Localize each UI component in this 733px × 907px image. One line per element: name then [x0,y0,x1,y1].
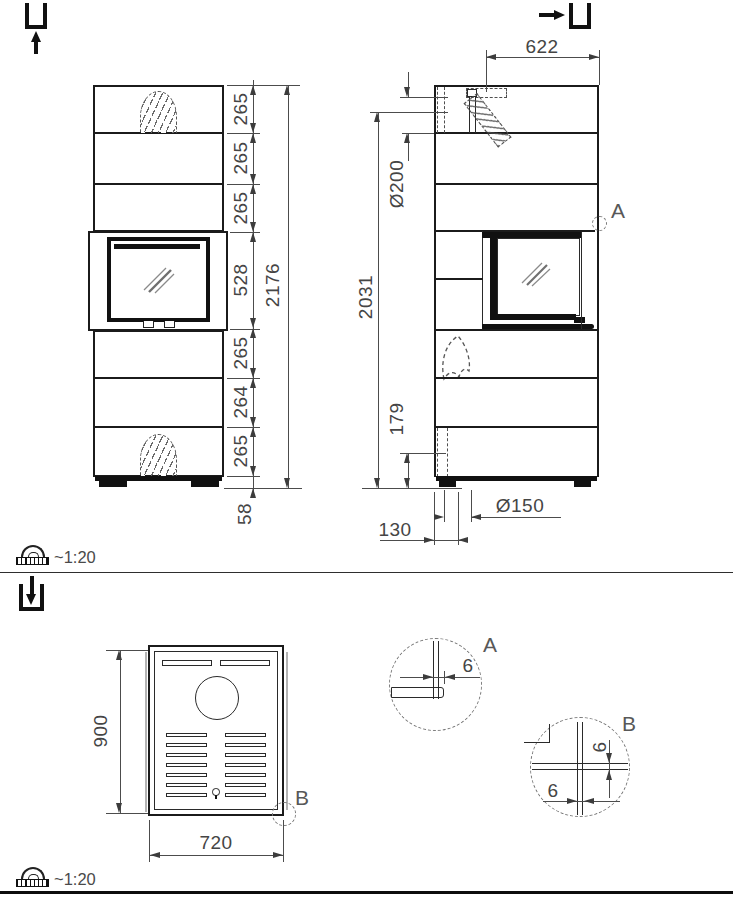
dim-arrow [589,54,599,60]
ext-line [106,813,148,814]
section-divider [0,572,733,574]
dim-label-detail-b-hgap: 6 [547,780,558,802]
dim-arrow [434,514,444,520]
side-flue-riser-hidden [444,87,445,133]
dim-arrow [284,85,290,95]
dim-arrow [584,798,594,804]
vent-slat [225,763,266,767]
top-plate-slot [220,660,270,666]
ext-line [370,112,448,113]
detail-b-corner-piece [524,742,550,744]
vent-slat [166,783,207,787]
vent-slat [225,793,266,797]
dim-arrow [445,674,455,680]
dim-arrow [606,753,612,763]
side-recess-bottom-line [434,329,600,331]
side-door-glass-reflection [515,256,555,288]
dim-arrow [250,488,256,498]
front-door-top-vent-bar [114,244,200,249]
dim-label-front-course-7: 265 [230,434,252,467]
side-door-front-frame [490,238,497,318]
dim-arrow [250,318,256,328]
scale-ruler-icon [16,557,49,566]
dim-total-height-line [288,85,289,488]
ext-line [444,490,445,522]
view-direction-up-arrow-icon [31,31,41,42]
dim-arrow [374,478,380,488]
detail-b-reference-label: B [295,786,309,810]
front-lower-course-line [94,426,223,428]
side-convection-duct-hidden [436,333,478,381]
front-lower-course-line [94,377,223,379]
detail-a-reference-circle [592,216,607,231]
detail-b-label: B [622,712,636,736]
top-flue-opening [195,676,239,720]
side-course-line [434,183,600,185]
dim-label-front-total: 2176 [262,263,284,307]
vent-slat [166,773,207,777]
dim-arrow [404,87,410,97]
scale-note-top: ~1:20 [54,548,96,567]
side-foot-front [439,481,456,488]
dim-width-line [150,855,283,856]
dim-label-outlet-diameter: Ø150 [496,495,544,517]
dim-arrow [284,478,290,488]
dim-label-depth: 900 [90,714,112,747]
ext-line [224,488,302,489]
side-outline-right [597,85,599,477]
dim-label-front-plinth: 58 [234,503,256,525]
vent-slat [166,793,207,797]
side-flue-riser-hidden [437,87,438,133]
vent-slat [166,763,207,767]
front-upper-course-line [94,183,223,185]
dim-arrow [404,478,410,488]
detail-a-glass-edge [433,641,434,699]
side-view-projection-icon [569,3,591,29]
side-recess-front-edge [482,231,484,330]
side-front-column-joint [434,278,483,280]
dim-label-front-course-1: 265 [230,92,252,125]
side-foot-rear [574,481,591,488]
dim-depth-line [120,650,121,813]
vent-slat [225,783,266,787]
technical-drawing-sheet: 265 265 265 528 265 264 265 58 2176 [0,0,733,907]
side-rear-outlet-hidden [447,428,448,477]
detail-a-dim-line [400,677,480,678]
side-outline-left [434,85,436,477]
view-direction-down-arrow-shaft [30,576,34,595]
side-plinth-strip [436,476,597,481]
top-plate-keyhole-slot [215,795,217,800]
dim-arrow [116,650,122,660]
dim-side-height-line [378,112,379,488]
view-direction-right-arrow-shaft [539,13,554,17]
vent-slat [166,743,207,747]
side-course-line [434,132,600,134]
dim-arrow [567,798,577,804]
side-door-bottom-bar [490,314,576,320]
detail-a-circle [389,638,482,731]
vent-slat [225,773,266,777]
vent-slat [166,753,207,757]
front-door-handle [164,321,175,328]
detail-b-corner-piece [549,724,551,744]
scale-note-bottom: ~1:20 [54,870,96,889]
dim-arrow [404,453,410,463]
dim-label-front-course-3: 265 [230,191,252,224]
dim-arrow [606,770,612,780]
front-door-glass-reflection [136,260,180,296]
dim-label-top-width: 622 [525,36,558,58]
dim-arrow [150,852,160,858]
view-direction-right-arrow-icon [554,10,565,20]
vent-slat [166,733,207,737]
front-view-projection-icon [25,3,47,29]
side-outline-top [434,85,600,87]
dim-label-outlet-height: 179 [386,402,408,435]
side-course-line [434,377,600,379]
dim-label-detail-a-gap: 6 [462,655,473,677]
vent-slat [225,733,266,737]
detail-b-reference-circle [272,802,296,826]
dim-arrow [250,174,256,184]
side-angled-flue-option-hidden [464,93,512,148]
dim-label-side-height: 2031 [355,275,377,319]
dim-label-outlet-offset: 130 [378,519,411,541]
view-direction-up-arrow-shaft [34,42,38,54]
dim-arrow [424,537,434,543]
dim-label-front-course-5: 265 [230,336,252,369]
top-view-side-glass-edge-right [286,652,288,810]
dim-arrow [250,232,256,242]
sheet-bottom-border [0,891,733,895]
detail-b-horizontal-joint [532,763,628,764]
ext-line [106,650,148,651]
dim-label-front-course-6: 264 [230,385,252,418]
dim-arrow [471,514,481,520]
scale-ruler-icon [16,879,49,888]
detail-a-reference-label: A [611,199,625,223]
dim-arrow [116,803,122,813]
side-door-latch [574,317,585,323]
dim-arrow [374,112,380,122]
dim-arrow [458,537,468,543]
front-door-handle [143,321,154,328]
vent-slat [225,753,266,757]
dim-label-front-firebox: 528 [230,263,252,296]
dim-arrow [486,54,496,60]
detail-a-glass-edge [438,641,439,699]
detail-a-shelf-section [391,687,444,698]
dim-label-width: 720 [199,832,232,854]
detail-b-horizontal-joint [532,769,628,770]
top-view-side-glass-edge-left [145,652,147,812]
vent-slat [225,743,266,747]
side-recess-back-edge [581,232,582,330]
dim-label-flue-diameter: Ø200 [386,160,408,208]
dim-label-detail-b-vgap: 6 [589,741,611,752]
front-foot-right [191,481,219,488]
top-plate-slot [162,660,212,666]
dim-label-front-course-2: 265 [230,141,252,174]
dim-arrow [404,133,410,143]
side-course-line [434,426,600,428]
front-foot-left [99,481,127,488]
view-direction-down-arrow-icon [26,594,36,605]
detail-a-label: A [483,633,497,657]
dim-arrow [423,674,433,680]
dim-arrow [273,852,283,858]
